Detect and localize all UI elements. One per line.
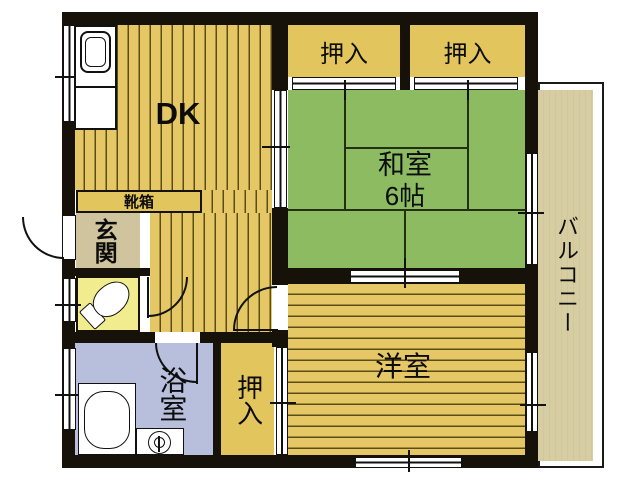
hallway-flooring-upper xyxy=(202,190,272,213)
balcony-text: バルコニー xyxy=(550,215,582,335)
wall-genkan-toilet xyxy=(74,268,150,276)
closet-top-right-label: 押入 xyxy=(410,27,525,75)
washitsu-balcony-window xyxy=(526,153,538,265)
bathroom-label: 浴室 xyxy=(150,352,192,436)
closet-top-left-label: 押入 xyxy=(288,27,400,75)
youshitsu-door-leaf xyxy=(233,329,278,331)
dk-label: DK xyxy=(128,96,228,132)
tatami-line xyxy=(467,90,469,210)
wall-center-upper xyxy=(272,25,288,90)
closet-right-sliding-door xyxy=(414,77,518,90)
wall-center-lower xyxy=(272,330,288,347)
tick xyxy=(270,402,296,404)
youshitsu-label: 洋室 xyxy=(343,348,463,382)
wall-bathroom-closet xyxy=(213,343,221,455)
balcony-label: バルコニー xyxy=(550,195,582,355)
dk-label-text: DK xyxy=(156,96,201,132)
toilet-door-leaf xyxy=(147,277,149,318)
floor-plan: DK 押入 押入 和室 6帖 洋室 バルコニー 靴箱 玄関 浴室 押入 xyxy=(0,0,640,480)
bathroom-door-opening xyxy=(155,332,200,343)
wall-bottom xyxy=(62,455,538,468)
toilet-window xyxy=(63,278,76,322)
wall-center-mid xyxy=(272,208,288,285)
tick xyxy=(344,80,346,100)
washitsu-size-label: 6帖 xyxy=(345,179,465,209)
tick xyxy=(518,212,544,214)
bathroom-door-leaf xyxy=(196,343,198,384)
closet-bottom-label: 押入 xyxy=(224,355,272,445)
front-door-panel xyxy=(62,215,76,260)
bathtub xyxy=(84,391,130,449)
closet-top-left-text: 押入 xyxy=(320,34,368,69)
drain-handle xyxy=(158,436,160,452)
tick xyxy=(404,258,406,288)
bathroom-text: 浴室 xyxy=(156,366,187,422)
genkan-text: 玄関 xyxy=(92,218,116,264)
kitchen-sink-basin xyxy=(85,37,106,67)
genkan-label: 玄関 xyxy=(84,215,124,267)
bathroom-window xyxy=(63,348,76,430)
closet-bottom-sliding-door xyxy=(276,347,288,455)
tick xyxy=(55,304,81,306)
tick xyxy=(467,80,469,100)
washitsu-fusuma-door xyxy=(274,90,287,208)
tick xyxy=(408,450,410,472)
front-door-swing-arc xyxy=(22,217,64,259)
wall-top xyxy=(62,12,538,25)
tick xyxy=(520,404,546,406)
kitchen-counter-divider xyxy=(75,86,116,88)
washitsu-label: 和室 xyxy=(345,147,465,177)
closet-bottom-text: 押入 xyxy=(234,374,261,426)
tick xyxy=(262,146,290,148)
wall-between-closets xyxy=(400,25,410,90)
youshitsu-balcony-window xyxy=(526,352,538,432)
youshitsu-text: 洋室 xyxy=(375,345,431,385)
shoe-box-label: 靴箱 xyxy=(76,190,202,213)
washitsu-size-text: 6帖 xyxy=(385,176,425,213)
closet-top-right-text: 押入 xyxy=(444,34,492,69)
shoe-box-text: 靴箱 xyxy=(124,191,154,212)
